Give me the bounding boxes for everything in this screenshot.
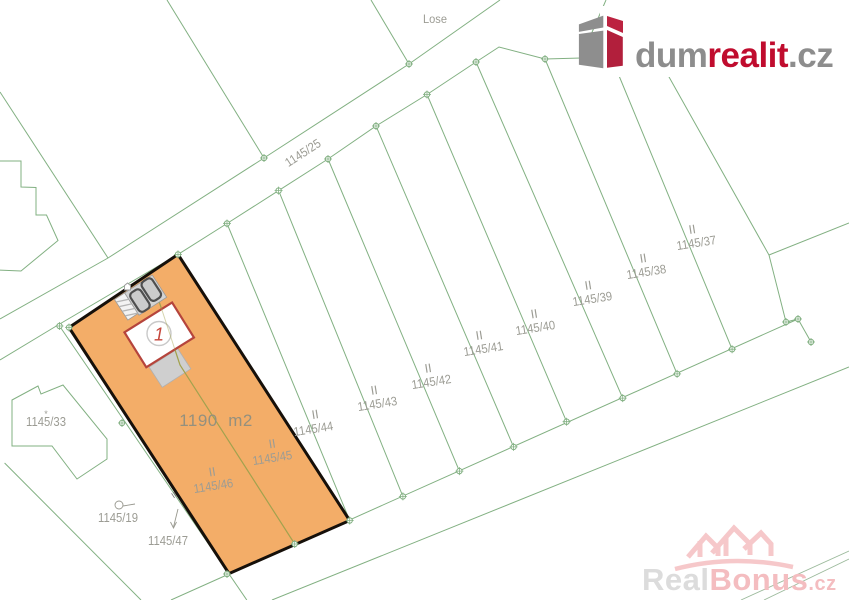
svg-text:*: *: [44, 409, 48, 419]
svg-text:1190 m2: 1190 m2: [179, 411, 253, 430]
svg-text:dumrealit.cz: dumrealit.cz: [635, 36, 833, 75]
svg-text:RealBonus.cz: RealBonus.cz: [642, 562, 837, 597]
svg-text:1145/47: 1145/47: [148, 534, 188, 548]
svg-text:1145/19: 1145/19: [98, 511, 138, 525]
svg-text:Lose: Lose: [423, 12, 447, 26]
svg-text:1: 1: [154, 325, 164, 345]
